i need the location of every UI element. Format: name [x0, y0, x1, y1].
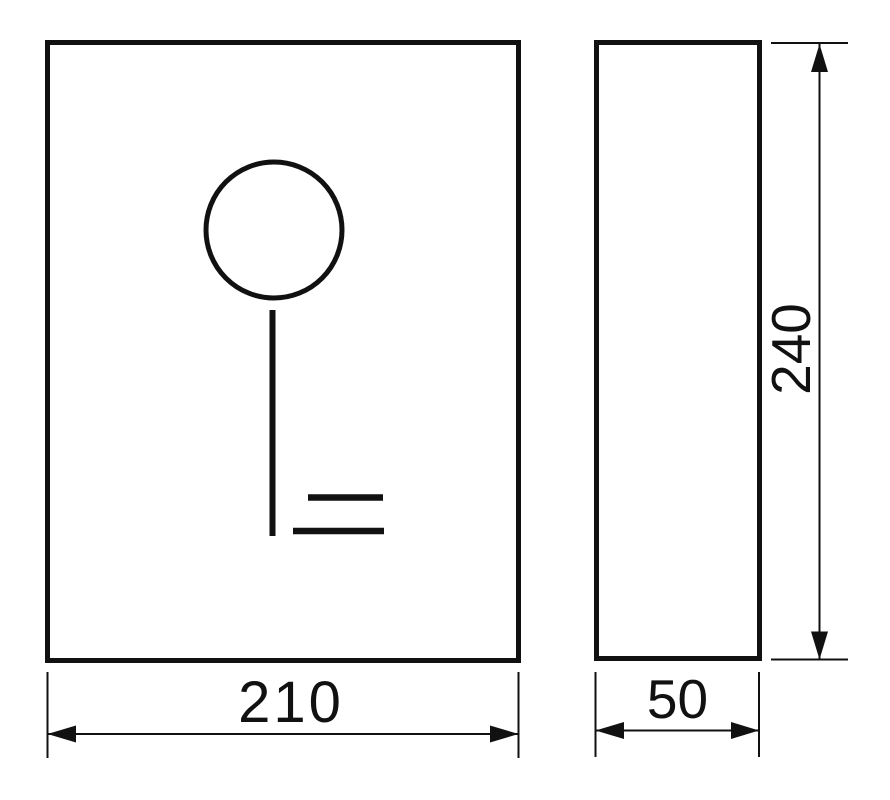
arrowhead-right-icon: [731, 722, 759, 739]
technical-drawing: 210 50 240: [0, 0, 890, 800]
dimension-label-side-width: 50: [647, 668, 708, 730]
side-view: [597, 43, 760, 659]
drawing-canvas: 210 50 240: [0, 0, 890, 800]
dimension-side-width: 50: [596, 668, 760, 757]
front-view-outline: [48, 43, 519, 661]
arrowhead-right-icon: [490, 726, 519, 743]
dimension-front-width: 210: [48, 670, 519, 758]
dimension-side-height: 240: [760, 43, 848, 660]
front-view: [48, 43, 519, 661]
dimension-label-front-width: 210: [238, 670, 344, 735]
key-icon: [206, 162, 384, 536]
side-view-outline: [597, 43, 760, 659]
arrowhead-up-icon: [811, 44, 828, 72]
dimension-label-side-height: 240: [760, 303, 822, 395]
arrowhead-down-icon: [811, 632, 828, 660]
key-bow-circle: [206, 162, 342, 298]
arrowhead-left-icon: [596, 722, 625, 739]
arrowhead-left-icon: [48, 726, 77, 743]
